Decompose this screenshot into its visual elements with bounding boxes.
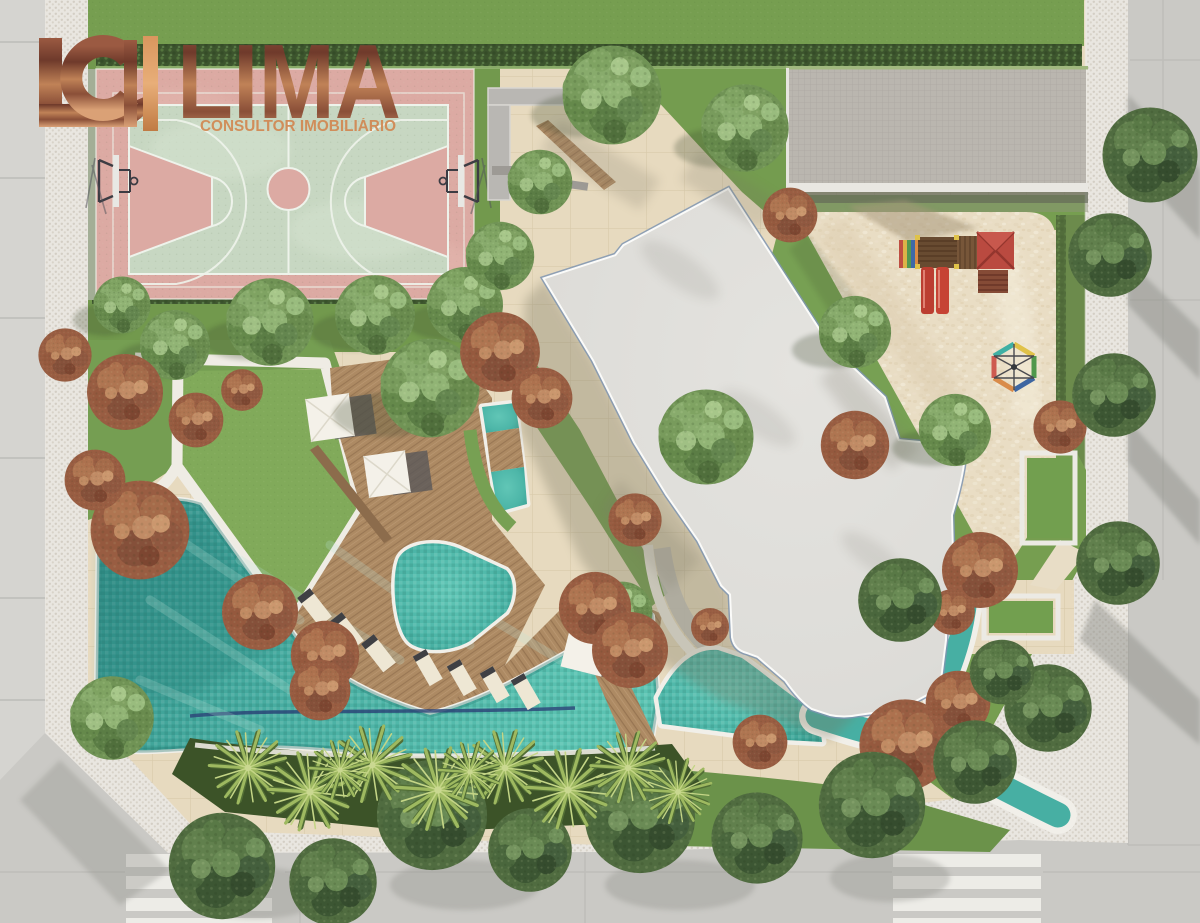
- svg-text:CONSULTOR IMOBILIÁRIO: CONSULTOR IMOBILIÁRIO: [200, 118, 396, 135]
